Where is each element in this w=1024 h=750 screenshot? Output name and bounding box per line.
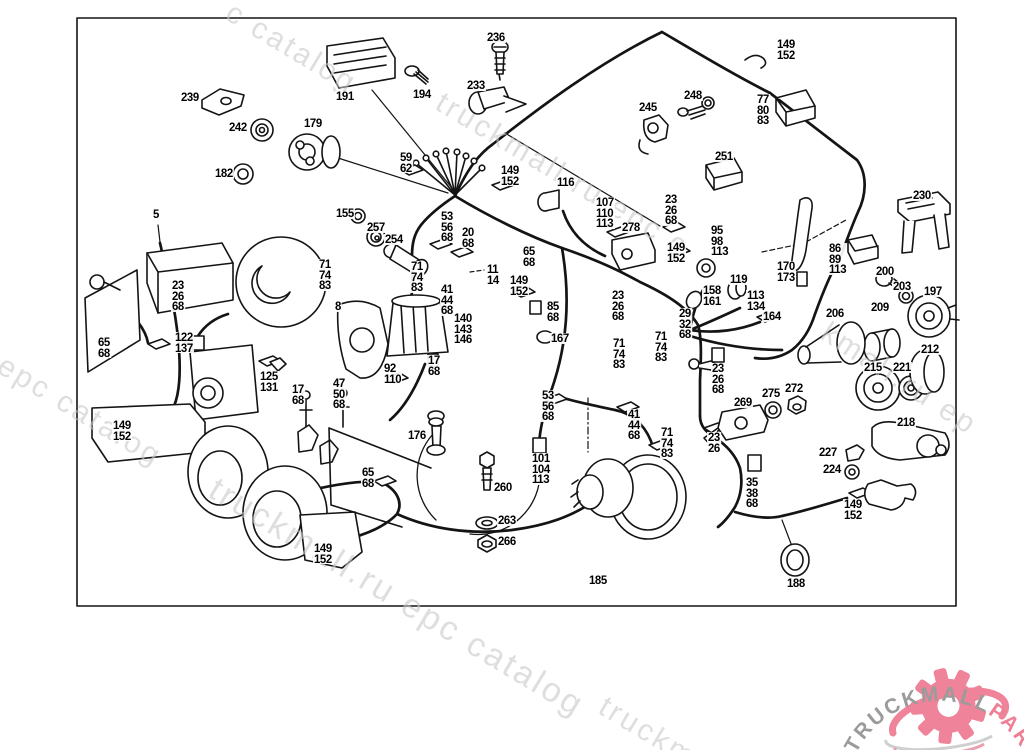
part-label-236: 236	[486, 32, 506, 43]
part-label-194: 194	[412, 89, 432, 100]
part-label-85-68: 8568	[546, 301, 560, 322]
part-label-188: 188	[786, 578, 806, 589]
part-label-29-32-68: 293268	[678, 308, 692, 340]
part-label-23-26-68: 232668	[171, 280, 185, 312]
part-label-92-110: 92110	[383, 363, 402, 384]
part-label-149-152: 149152	[313, 543, 333, 564]
part-label-23-26: 2326	[707, 432, 721, 453]
part-label-227: 227	[818, 447, 838, 458]
part-label-17-68: 1768	[291, 384, 305, 405]
part-label-179: 179	[303, 118, 323, 129]
part-label-71-74-83: 717483	[660, 427, 674, 459]
part-label-269: 269	[733, 397, 753, 408]
part-label-140-143-146: 140143146	[453, 313, 473, 345]
part-label-221: 221	[892, 362, 912, 373]
part-label-59-62: 5962	[399, 152, 413, 173]
part-label-182: 182	[214, 168, 234, 179]
part-label-200: 200	[875, 266, 895, 277]
part-label-245: 245	[638, 102, 658, 113]
part-label-53-56-68: 535668	[440, 211, 454, 243]
part-label-5: 5	[152, 209, 160, 220]
part-label-53-56-68: 535668	[541, 390, 555, 422]
part-label-248: 248	[683, 90, 703, 101]
part-label-35-38-68: 353868	[745, 477, 759, 509]
part-label-71-74-83: 717483	[410, 261, 424, 293]
part-label-65-68: 6568	[97, 337, 111, 358]
part-label-278: 278	[621, 222, 641, 233]
part-label-77-80-83: 778083	[756, 94, 770, 126]
part-label-47-50-68: 475068	[332, 378, 346, 410]
part-label-125-131: 125131	[259, 371, 279, 392]
part-label-101-104-113: 101104113	[531, 453, 551, 485]
part-label-239: 239	[180, 92, 200, 103]
part-label-41-44-68: 414468	[627, 409, 641, 441]
part-label-263: 263	[497, 515, 517, 526]
part-label-95-98-113: 9598113	[710, 225, 729, 257]
part-label-23-26-68: 232668	[664, 194, 678, 226]
part-label-191: 191	[335, 91, 355, 102]
part-label-107-110-113: 107110113	[595, 197, 615, 229]
part-label-149-152: 149152	[776, 39, 796, 60]
part-label-206: 206	[825, 308, 845, 319]
part-label-170-173: 170173	[776, 261, 796, 282]
part-label-233: 233	[466, 80, 486, 91]
part-label-158-161: 158161	[702, 285, 722, 306]
part-label-164: 164	[762, 311, 782, 322]
part-label-167: 167	[550, 333, 570, 344]
part-label-149-152: 149152	[500, 165, 520, 186]
part-label-254: 254	[384, 234, 404, 245]
part-label-149-152: 149152	[112, 420, 132, 441]
part-label-41-44-68: 414468	[440, 284, 454, 316]
part-label-197: 197	[923, 286, 943, 297]
part-label-122-137: 122137	[174, 332, 194, 353]
part-label-260: 260	[493, 482, 513, 493]
part-label-23-26-68: 232668	[711, 363, 725, 395]
part-label-71-74-83: 717483	[654, 331, 668, 363]
part-label-119: 119	[729, 274, 748, 285]
part-label-272: 272	[784, 383, 804, 394]
part-label-149-152: 149152	[843, 499, 863, 520]
part-label-275: 275	[761, 388, 781, 399]
part-label-242: 242	[228, 122, 248, 133]
part-label-20-68: 2068	[461, 227, 475, 248]
part-label-209: 209	[870, 302, 890, 313]
part-label-203: 203	[892, 281, 912, 292]
diagram-canvas: TRUCKMALLPARTS c catalogtruckmall.ru epc…	[0, 0, 1024, 750]
part-label-185: 185	[588, 575, 608, 586]
part-label-176: 176	[407, 430, 427, 441]
part-label-17-68: 1768	[427, 355, 441, 376]
part-label-71-74-83: 717483	[612, 338, 626, 370]
part-label-11-14: 1114	[486, 264, 500, 285]
part-label-23-26-68: 232668	[611, 290, 625, 322]
part-label-65-68: 6568	[361, 467, 375, 488]
part-label-155: 155	[335, 208, 355, 219]
part-label-86-89-113: 8689113	[828, 243, 847, 275]
part-label-266: 266	[497, 536, 517, 547]
part-label-230: 230	[912, 190, 932, 201]
part-label-65-68: 6568	[522, 246, 536, 267]
part-label-212: 212	[920, 344, 940, 355]
part-label-218: 218	[896, 417, 916, 428]
part-label-257: 257	[366, 222, 386, 233]
part-label-224: 224	[822, 464, 842, 475]
part-label-71-74-83: 717483	[318, 259, 332, 291]
part-label-116: 116	[556, 177, 575, 188]
part-label-215: 215	[863, 362, 883, 373]
part-label-149-152: 149152	[509, 275, 529, 296]
part-label-113-134: 113134	[746, 290, 766, 311]
part-label-149-152: 149152	[666, 242, 686, 263]
part-label-8: 8	[334, 301, 342, 312]
part-labels-layer: 2392421821791911942362335596214915211615…	[0, 0, 1024, 750]
part-label-251: 251	[714, 151, 734, 162]
